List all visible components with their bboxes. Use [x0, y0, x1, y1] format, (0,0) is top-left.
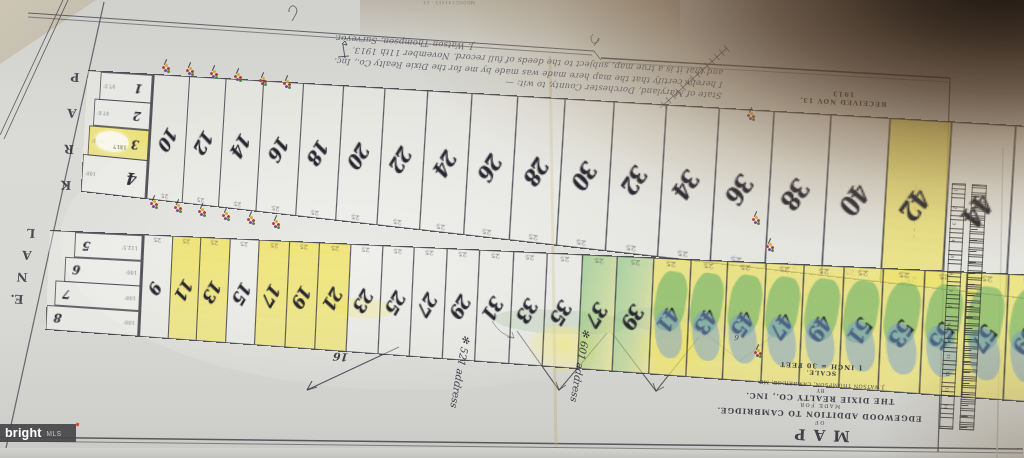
lot-39: 3925: [612, 257, 653, 373]
lot-number: 43: [689, 303, 725, 335]
lot-number: 46: [1018, 193, 1024, 235]
lot-number: 38: [775, 173, 819, 211]
lot-30: 3025: [556, 100, 614, 251]
flower-sticker: [160, 63, 170, 73]
lot-number: 31: [478, 291, 510, 322]
lot-number: 17: [258, 279, 287, 308]
flower-sticker: [196, 207, 206, 217]
lot-number: 27: [412, 288, 443, 318]
lot-number: 19: [288, 281, 317, 310]
flower-sticker: [745, 111, 755, 121]
lot-19: 1925: [284, 242, 319, 349]
lot-frontage-dimension: 25: [741, 264, 751, 272]
lot-frontage-dimension: 25: [154, 237, 162, 244]
pen-note: 1817: [113, 144, 127, 151]
lot-number: 25: [380, 286, 411, 316]
lot-frontage-dimension: 25: [330, 245, 339, 252]
lot-31: 3125: [474, 251, 513, 363]
flower-sticker: [208, 69, 218, 79]
lot-number: 36: [720, 169, 763, 207]
lot-number: 20: [344, 138, 376, 171]
lot-frontage-dimension: 25: [594, 257, 604, 265]
lot-number: 34: [667, 165, 708, 202]
flower-sticker: [172, 203, 182, 213]
strip-dimension: 97.6': [97, 109, 109, 116]
strip-lot-number: 4: [127, 168, 139, 189]
ruler-number: 7: [948, 289, 953, 292]
lot-17: 1725: [254, 241, 289, 347]
lot-frontage-dimension: 25: [576, 238, 586, 247]
lot-number: 49: [803, 309, 841, 342]
lot-32: 3225: [605, 102, 665, 255]
lot-number: 21: [318, 282, 348, 311]
lot-frontage-dimension: 25: [898, 271, 909, 279]
lot-number: 11: [171, 274, 199, 302]
strip-lots-1-4: 197.5'297.6'391.3'18174100': [81, 71, 154, 198]
map-title-block: MAP OF EDGEWOOD ADDITION TO CAMBRIDGE. M…: [693, 337, 947, 450]
lot-frontage-dimension: 25: [528, 233, 538, 242]
flower-sticker: [232, 72, 242, 82]
lot-15: 1525: [225, 239, 259, 344]
lot-11: 1125: [167, 237, 200, 340]
ruler-number: 9: [946, 322, 951, 325]
flower-sticker: [220, 211, 230, 221]
lot-frontage-dimension: 25: [481, 228, 491, 237]
lot-number: 14: [227, 129, 256, 160]
lot-frontage-dimension: 25: [271, 205, 279, 213]
strip-lots-5-8: 5112.5'6100'7100'8100': [46, 231, 144, 336]
lot-number: 47: [764, 307, 801, 340]
lot-number: 33: [512, 293, 545, 324]
lot-number: 51: [842, 312, 881, 345]
lot-number: 59: [1007, 321, 1024, 356]
strip-lot-number: 7: [63, 287, 72, 302]
lot-frontage-dimension: 25: [211, 239, 219, 246]
lot-frontage-dimension: 25: [233, 200, 241, 208]
lot-number: 40: [833, 178, 879, 217]
strip-lot-number: 6: [73, 263, 82, 278]
street-letter-L: L: [24, 226, 39, 241]
lot-number: 28: [519, 153, 556, 188]
flower-sticker: [270, 219, 280, 229]
street-letter-N: N: [15, 270, 30, 285]
strip-dimension: 112.5': [122, 244, 138, 251]
ruler-number: 2: [952, 206, 957, 209]
lot-frontage-dimension: 25: [559, 255, 569, 263]
street-letter-R: R: [62, 142, 77, 157]
ruler-number: 8: [947, 305, 952, 308]
ruler-number: 13: [944, 387, 949, 393]
lot-frontage-dimension: 25: [269, 242, 277, 249]
lot-number: 15: [228, 277, 256, 306]
lot-frontage-dimension: 25: [818, 267, 829, 275]
lot-42: 4225: [880, 119, 951, 288]
lot-frontage-dimension: 25: [393, 248, 402, 255]
flower-sticker: [245, 215, 255, 225]
flower-sticker: [764, 242, 774, 252]
strip-lot-number: 1: [135, 81, 144, 96]
flower-sticker: [752, 348, 762, 358]
ruler-number: 12: [945, 370, 950, 376]
lot-number: 22: [385, 142, 419, 175]
lot-frontage-dimension: 25: [677, 249, 688, 258]
flower-sticker: [257, 76, 267, 86]
street-letter-K: K: [59, 178, 74, 193]
pen-mark-6: 6: [735, 333, 739, 341]
strip-dimension: 100': [85, 170, 95, 177]
lot-frontage-dimension: 25: [779, 265, 790, 273]
lot-frontage-dimension: 25: [703, 262, 713, 270]
lot-number: 30: [566, 156, 604, 192]
lot-number: 42: [892, 183, 940, 223]
lot-frontage-dimension: 25: [240, 241, 248, 248]
lot-28: 2825: [509, 97, 565, 245]
strip-lot-number: 2: [133, 108, 142, 123]
lot-34: 3425: [656, 106, 718, 262]
watermark-mls-label: MLS: [47, 430, 62, 437]
pen-arrow-label-16: 16: [334, 350, 350, 364]
lot-frontage-dimension: 25: [351, 213, 360, 221]
lot-frontage-dimension: 25: [393, 218, 402, 226]
lot-frontage-dimension: 25: [300, 243, 308, 250]
bright-mls-watermark: bright MLS: [0, 424, 76, 442]
photographed-plat-map: 197.5'297.6'391.3'18174100' 102512251425…: [0, 0, 1024, 458]
lot-21: 2125: [315, 243, 351, 351]
ruler-number: 3: [952, 222, 957, 225]
lot-frontage-dimension: 25: [458, 251, 467, 259]
strip-lot-number: 8: [54, 311, 63, 326]
lot-frontage-dimension: 25: [491, 252, 500, 260]
lot-35: 3525: [542, 254, 582, 368]
ruler-number: 1: [953, 189, 958, 192]
lot-number: 53: [882, 314, 921, 348]
faint-photo-id-text: MDDO2141413 - 13: [405, 0, 475, 5]
lot-number: 16: [264, 132, 294, 164]
lot-number: 32: [616, 160, 656, 196]
strip-lot-number: 3: [132, 137, 141, 152]
lot-number: 13: [199, 276, 227, 304]
lot-23: 2325: [345, 245, 381, 354]
watermark-brand: bright: [5, 426, 42, 440]
lot-40: 4025: [821, 115, 890, 281]
lot-number: 35: [546, 295, 579, 326]
lot-number: 12: [190, 126, 219, 157]
lot-frontage-dimension: 25: [182, 238, 190, 245]
lot-frontage-dimension: 25: [525, 254, 534, 262]
lot-frontage-dimension: 25: [361, 246, 370, 253]
ruler-number: 10: [947, 337, 952, 343]
ruler-number: 11: [946, 354, 951, 360]
lot-number: 9: [145, 277, 167, 296]
ruler-number: 14: [943, 403, 948, 409]
lot-number: 26: [473, 149, 509, 183]
lot-number: 37: [581, 297, 615, 328]
lot-frontage-dimension: 25: [630, 258, 640, 266]
lot-frontage-dimension: 25: [310, 209, 319, 217]
lot-number: 41: [652, 301, 687, 333]
lot-number: 24: [428, 145, 463, 179]
lot-number: 10: [154, 123, 182, 153]
street-letter-E.: E.: [10, 292, 25, 307]
lot-number: 39: [616, 299, 651, 331]
strip-dimension: 100': [126, 269, 137, 276]
lot-frontage-dimension: 25: [436, 223, 445, 231]
flower-sticker: [148, 199, 158, 209]
lot-13: 1325: [196, 238, 230, 342]
flower-sticker: [184, 66, 194, 76]
ruler-number: 5: [950, 256, 955, 259]
lot-number: 23: [349, 284, 379, 314]
lot-frontage-dimension: 25: [857, 269, 868, 277]
lot-number: 18: [303, 135, 334, 167]
lot-number: 29: [445, 289, 477, 319]
flower-sticker: [281, 79, 291, 89]
strip-lot-number: 5: [83, 238, 92, 253]
lot-41: 4125: [648, 259, 690, 376]
lot-27: 2725: [409, 248, 446, 358]
lot-number: 45: [726, 305, 762, 338]
strip-lot-4: 4100': [81, 154, 148, 199]
flower-sticker: [750, 215, 760, 225]
strip-dimension: 97.5': [103, 83, 115, 90]
lot-25: 2525: [377, 246, 414, 355]
lot-33: 3325: [508, 252, 547, 365]
lot-frontage-dimension: 25: [625, 243, 636, 252]
lot-frontage-dimension: 25: [425, 249, 434, 257]
ruler-number: 6: [949, 272, 954, 275]
lot-frontage-dimension: 25: [666, 260, 676, 268]
street-letter-P: P: [68, 70, 83, 85]
lot-frontage-dimension: 25: [160, 192, 168, 199]
street-letter-A: A: [20, 248, 35, 263]
strip-dimension: 100': [124, 319, 135, 326]
ruler-number: 4: [951, 239, 956, 242]
strip-dimension: 100': [125, 294, 136, 301]
street-letter-A: A: [65, 106, 80, 121]
